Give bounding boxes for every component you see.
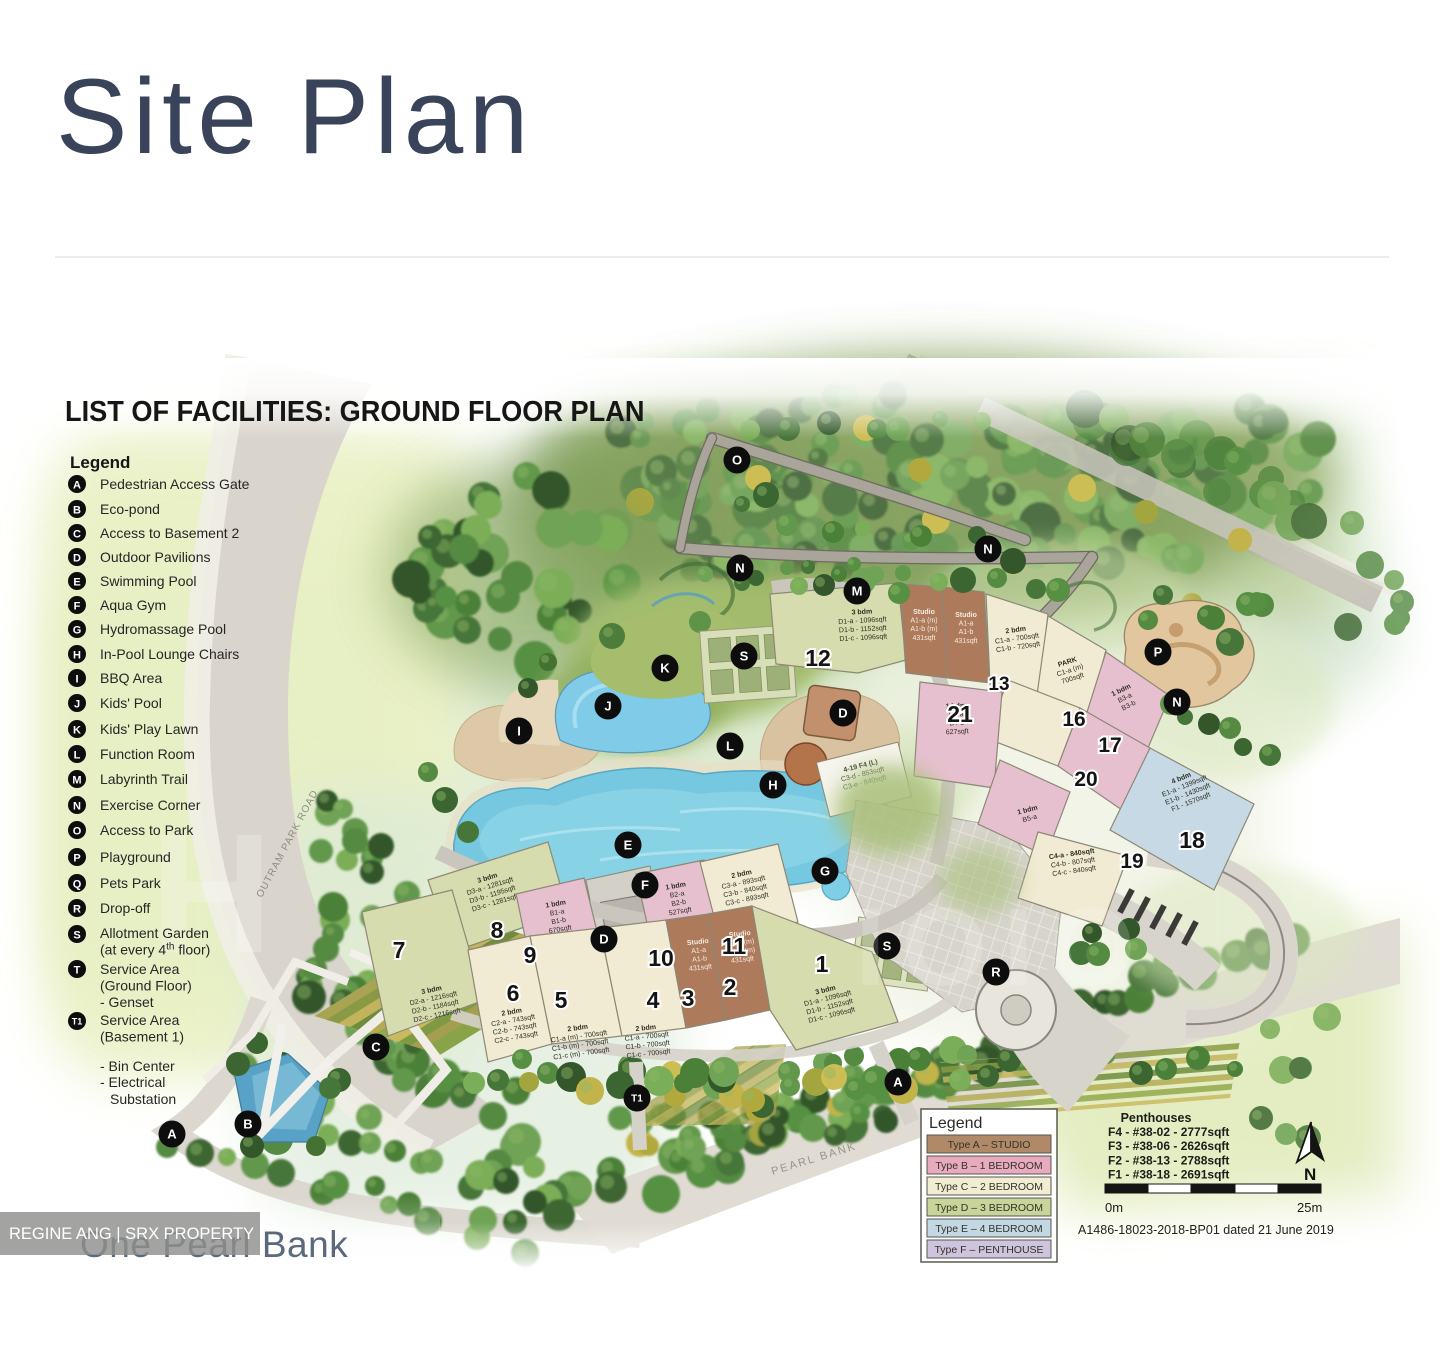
svg-text:IOIO: IOIO: [855, 886, 1151, 1009]
svg-text:0m: 0m: [1105, 1200, 1123, 1215]
svg-text:Access to Park: Access to Park: [100, 822, 194, 838]
svg-text:- Electrical: - Electrical: [100, 1074, 165, 1090]
svg-text:G: G: [73, 625, 82, 637]
svg-text:C: C: [371, 1040, 381, 1055]
svg-text:Type D – 3 BEDROOM: Type D – 3 BEDROOM: [935, 1202, 1043, 1214]
svg-text:T1: T1: [631, 1094, 643, 1105]
svg-text:(Ground Floor): (Ground Floor): [100, 978, 192, 994]
svg-text:StudioA1-a (m)A1-b (m)431sqft: StudioA1-a (m)A1-b (m)431sqft: [910, 609, 937, 642]
svg-text:(at every 4th floor): (at every 4th floor): [100, 941, 210, 958]
svg-text:LIST OF FACILITIES: GROUND FLO: LIST OF FACILITIES: GROUND FLOOR PLAN: [65, 395, 645, 427]
svg-text:Kids' Pool: Kids' Pool: [100, 695, 162, 711]
svg-text:D: D: [838, 706, 847, 721]
svg-text:A: A: [167, 1127, 177, 1142]
svg-text:O: O: [73, 826, 82, 838]
svg-text:Aqua Gym: Aqua Gym: [100, 597, 166, 613]
svg-text:BBQ Area: BBQ Area: [100, 670, 162, 686]
svg-text:REGINE ANG | SRX PROPERTY: REGINE ANG | SRX PROPERTY: [9, 1225, 254, 1243]
svg-text:Allotment Garden: Allotment Garden: [100, 925, 209, 941]
svg-text:D: D: [599, 932, 608, 947]
svg-text:N: N: [73, 801, 81, 813]
svg-text:Outdoor Pavilions: Outdoor Pavilions: [100, 549, 211, 565]
svg-text:13: 13: [988, 674, 1009, 695]
svg-text:B: B: [243, 1117, 252, 1132]
svg-text:Substation: Substation: [110, 1091, 176, 1107]
svg-text:N: N: [735, 561, 744, 576]
svg-text:Hydromassage Pool: Hydromassage Pool: [100, 621, 226, 637]
svg-text:1: 1: [816, 951, 829, 977]
svg-text:Site Plan: Site Plan: [56, 56, 534, 176]
svg-text:Type B – 1 BEDROOM: Type B – 1 BEDROOM: [935, 1160, 1042, 1172]
svg-text:- Genset: - Genset: [100, 994, 154, 1010]
svg-text:J: J: [604, 699, 611, 714]
svg-text:6: 6: [507, 980, 520, 1006]
svg-text:L: L: [726, 739, 734, 754]
svg-text:(Basement 1): (Basement 1): [100, 1029, 184, 1045]
svg-text:Type E – 4 BEDROOM: Type E – 4 BEDROOM: [935, 1223, 1042, 1235]
svg-text:Pedestrian Access Gate: Pedestrian Access Gate: [100, 476, 250, 492]
svg-text:K: K: [660, 661, 670, 676]
svg-text:N: N: [1304, 1165, 1316, 1184]
svg-text:Pets Park: Pets Park: [100, 875, 162, 891]
svg-text:Type F – PENTHOUSE: Type F – PENTHOUSE: [934, 1244, 1043, 1256]
svg-text:N: N: [983, 542, 992, 557]
svg-text:N: N: [1172, 695, 1181, 710]
svg-text:F2 - #38-13 - 2788sqft: F2 - #38-13 - 2788sqft: [1108, 1153, 1229, 1167]
svg-text:A1486-18023-2018-BP01 dated 21: A1486-18023-2018-BP01 dated 21 June 2019: [1078, 1223, 1334, 1237]
svg-text:F4 - #38-02 - 2777sqft: F4 - #38-02 - 2777sqft: [1108, 1125, 1229, 1139]
svg-text:G: G: [820, 864, 830, 879]
svg-text:16: 16: [1062, 708, 1085, 731]
svg-text:J: J: [74, 699, 80, 711]
svg-text:K: K: [73, 725, 81, 737]
svg-text:C: C: [73, 529, 81, 541]
svg-text:T1: T1: [72, 1017, 83, 1027]
svg-text:Penthouses: Penthouses: [1121, 1111, 1192, 1125]
svg-text:Eco-pond: Eco-pond: [100, 501, 160, 517]
svg-text:P: P: [73, 853, 80, 865]
svg-text:F: F: [74, 601, 81, 613]
svg-text:F: F: [641, 878, 649, 893]
svg-text:2: 2: [724, 974, 737, 1000]
svg-text:In-Pool Lounge Chairs: In-Pool Lounge Chairs: [100, 646, 239, 662]
svg-text:D: D: [73, 553, 81, 565]
svg-text:20: 20: [1074, 768, 1097, 791]
svg-text:L: L: [74, 750, 81, 762]
svg-text:F3 - #38-06 - 2626sqft: F3 - #38-06 - 2626sqft: [1108, 1139, 1229, 1153]
svg-text:T: T: [74, 965, 81, 977]
svg-text:21: 21: [947, 701, 973, 727]
svg-text:Function Room: Function Room: [100, 746, 195, 762]
svg-text:Kids' Play Lawn: Kids' Play Lawn: [100, 721, 198, 737]
svg-text:O: O: [732, 453, 742, 468]
svg-text:Q: Q: [73, 879, 82, 891]
svg-text:I: I: [75, 674, 78, 686]
svg-text:S: S: [73, 930, 80, 942]
svg-text:7: 7: [393, 937, 406, 963]
svg-text:Type A – STUDIO: Type A – STUDIO: [948, 1139, 1031, 1151]
svg-text:9: 9: [524, 942, 537, 968]
svg-text:F1 - #38-18 - 2691sqft: F1 - #38-18 - 2691sqft: [1108, 1168, 1229, 1182]
svg-text:5: 5: [555, 987, 568, 1013]
svg-text:Service Area: Service Area: [100, 1012, 180, 1028]
svg-text:Legend: Legend: [929, 1115, 982, 1132]
svg-text:P: P: [1154, 645, 1163, 660]
svg-text:M: M: [852, 584, 863, 599]
svg-text:11: 11: [722, 933, 747, 959]
svg-text:Drop-off: Drop-off: [100, 900, 150, 916]
svg-text:Labyrinth Trail: Labyrinth Trail: [100, 771, 188, 787]
svg-text:Legend: Legend: [70, 453, 130, 472]
svg-text:Exercise Corner: Exercise Corner: [100, 797, 201, 813]
svg-text:Service Area: Service Area: [100, 961, 180, 977]
svg-text:Type C – 2 BEDROOM: Type C – 2 BEDROOM: [935, 1181, 1043, 1193]
svg-text:S: S: [740, 649, 749, 664]
svg-text:A: A: [73, 480, 81, 492]
svg-text:E: E: [73, 577, 80, 589]
svg-text:H: H: [768, 778, 777, 793]
svg-text:Playground: Playground: [100, 849, 171, 865]
svg-text:- Bin Center: - Bin Center: [100, 1058, 175, 1074]
svg-text:H: H: [73, 650, 81, 662]
svg-text:I: I: [517, 724, 521, 739]
svg-text:E: E: [624, 838, 633, 853]
svg-text:Swimming Pool: Swimming Pool: [100, 573, 196, 589]
svg-text:3: 3: [682, 985, 695, 1011]
svg-text:25m: 25m: [1297, 1200, 1322, 1215]
svg-text:R: R: [73, 904, 81, 916]
svg-text:Access to Basement 2: Access to Basement 2: [100, 525, 240, 541]
svg-text:A: A: [893, 1075, 903, 1090]
svg-text:8: 8: [491, 917, 504, 943]
svg-text:18: 18: [1179, 827, 1205, 853]
svg-text:B: B: [73, 505, 81, 517]
svg-text:10: 10: [648, 945, 674, 971]
svg-text:12: 12: [805, 645, 831, 671]
svg-text:4: 4: [647, 987, 660, 1013]
svg-text:19: 19: [1120, 850, 1143, 873]
svg-text:M: M: [72, 775, 81, 787]
svg-text:17: 17: [1098, 734, 1121, 757]
